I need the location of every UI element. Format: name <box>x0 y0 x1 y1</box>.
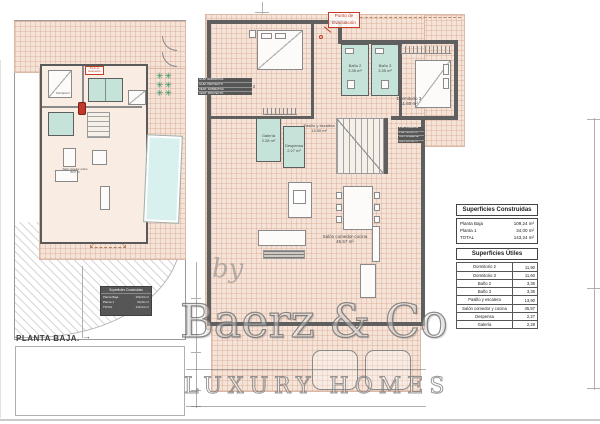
pillow <box>443 64 449 75</box>
detail-floor-plan: Dormitorio 211.90 m² Baño 23.35 m² Baño … <box>195 8 485 403</box>
wall <box>311 20 314 119</box>
dimension-tick <box>191 352 201 353</box>
summary-table-mini: Superficies Construidas Planta Baja109,2… <box>100 286 152 316</box>
chair <box>336 192 342 199</box>
room-label-bano3: Baño 33.35 m² <box>368 64 402 74</box>
arrow-icon: → <box>82 331 91 341</box>
pillow <box>261 33 272 39</box>
window-schedule-table: ILUM. NORMATIVA ILUM. PROYECTO VENT. NOR… <box>198 78 252 95</box>
leader-line <box>82 266 83 338</box>
wall <box>207 20 211 326</box>
chair <box>374 192 380 199</box>
room-label-despensa: Despensa2.27 m² <box>278 144 310 154</box>
room-label-dormitorio2-small: Dormitorio 2 <box>48 92 78 95</box>
dimension-tick <box>191 298 201 299</box>
pillow <box>443 78 449 89</box>
fire-extinguisher-icon <box>78 102 86 115</box>
roof-dashed-line <box>345 17 461 18</box>
interior-wall <box>82 66 84 106</box>
evacuation-point-label-small: Punto de Evacuación <box>85 66 104 75</box>
room-label-salon-small: Salón comedor-cocina45.57 m² <box>55 168 95 174</box>
staircase <box>336 118 384 174</box>
bathroom-divider-wall <box>105 79 106 101</box>
rug <box>263 250 305 259</box>
window-schedule-table: ILUM. NORMATIVA ILUM. PROYECTO VENT. NOR… <box>398 127 424 143</box>
dimension-tick <box>191 390 201 391</box>
dimension-tick <box>255 12 269 13</box>
garden-plants: ✳✳✳✳✳✳ <box>156 72 184 116</box>
sheet-edge <box>0 419 600 421</box>
dimension-tick <box>191 406 201 407</box>
staircase <box>87 112 110 138</box>
table-title-utiles: Superficies Útiles <box>456 248 538 260</box>
dining-table <box>343 186 373 230</box>
room-label-bano2: Baño 23.35 m² <box>338 64 372 74</box>
cooktop <box>293 190 306 204</box>
kitchen-island <box>63 148 76 167</box>
interior-wall <box>42 106 142 108</box>
pillow <box>275 33 286 39</box>
dimension-tick <box>587 388 600 389</box>
room-label-dormitorio3: Dormitorio 311.60 m² <box>381 96 437 107</box>
wall <box>207 322 425 326</box>
toilet <box>347 80 355 89</box>
chair <box>374 204 380 211</box>
site-plan-planta-baja: Salón comedor-cocina45.57 m² Dormitorio … <box>10 8 195 420</box>
plot-boundary-lower <box>15 346 185 416</box>
sheet-edge <box>0 60 1 418</box>
galeria-room <box>48 112 74 136</box>
table-construidas: Planta Baja109,24 m² Planta 134,00 m² TO… <box>456 218 538 244</box>
plan-title: PLANTA BAJA. <box>16 334 80 343</box>
wall <box>454 40 458 120</box>
floorplan-sheet: Salón comedor-cocina45.57 m² Dormitorio … <box>0 0 600 424</box>
room-label-pasillo: Pasillo y escalera13.50 m² <box>297 124 341 134</box>
sofa <box>360 264 376 298</box>
area-tables: Superficies Construidas Planta Baja109,2… <box>456 204 538 329</box>
watermark-divider <box>186 406 426 407</box>
sink <box>375 48 384 54</box>
dimension-line <box>196 262 197 408</box>
chair <box>374 216 380 223</box>
chair <box>336 216 342 223</box>
room-label-galeria: Galería2.28 m² <box>252 134 285 144</box>
dining-table <box>92 150 107 165</box>
table-utiles: Dormitorio 211,90 Dormitorio 311,60 Baño… <box>456 262 538 329</box>
pool <box>144 135 182 222</box>
table-title-construidas: Superficies Construidas <box>456 204 538 216</box>
sofa <box>100 186 110 210</box>
wall <box>384 118 388 174</box>
dimension-tick <box>587 119 600 120</box>
evacuation-point-label: Punto deEvacuación <box>328 12 360 28</box>
dimension-tick <box>587 288 600 289</box>
toilet <box>381 80 389 89</box>
sofa <box>258 230 306 246</box>
bed <box>128 90 146 105</box>
wall <box>421 116 425 326</box>
dimension-line <box>594 118 595 390</box>
sink <box>345 48 354 54</box>
wall <box>207 20 347 24</box>
chair <box>336 204 342 211</box>
sun-lounger <box>365 350 411 390</box>
nightstand <box>249 30 256 38</box>
wardrobe <box>401 46 451 54</box>
room-label-salon: Salón comedor-cocina45.57 m² <box>315 234 375 245</box>
sun-lounger <box>312 350 358 390</box>
evacuation-point-marker <box>319 35 323 39</box>
wardrobe <box>263 108 297 115</box>
wall <box>399 44 402 118</box>
